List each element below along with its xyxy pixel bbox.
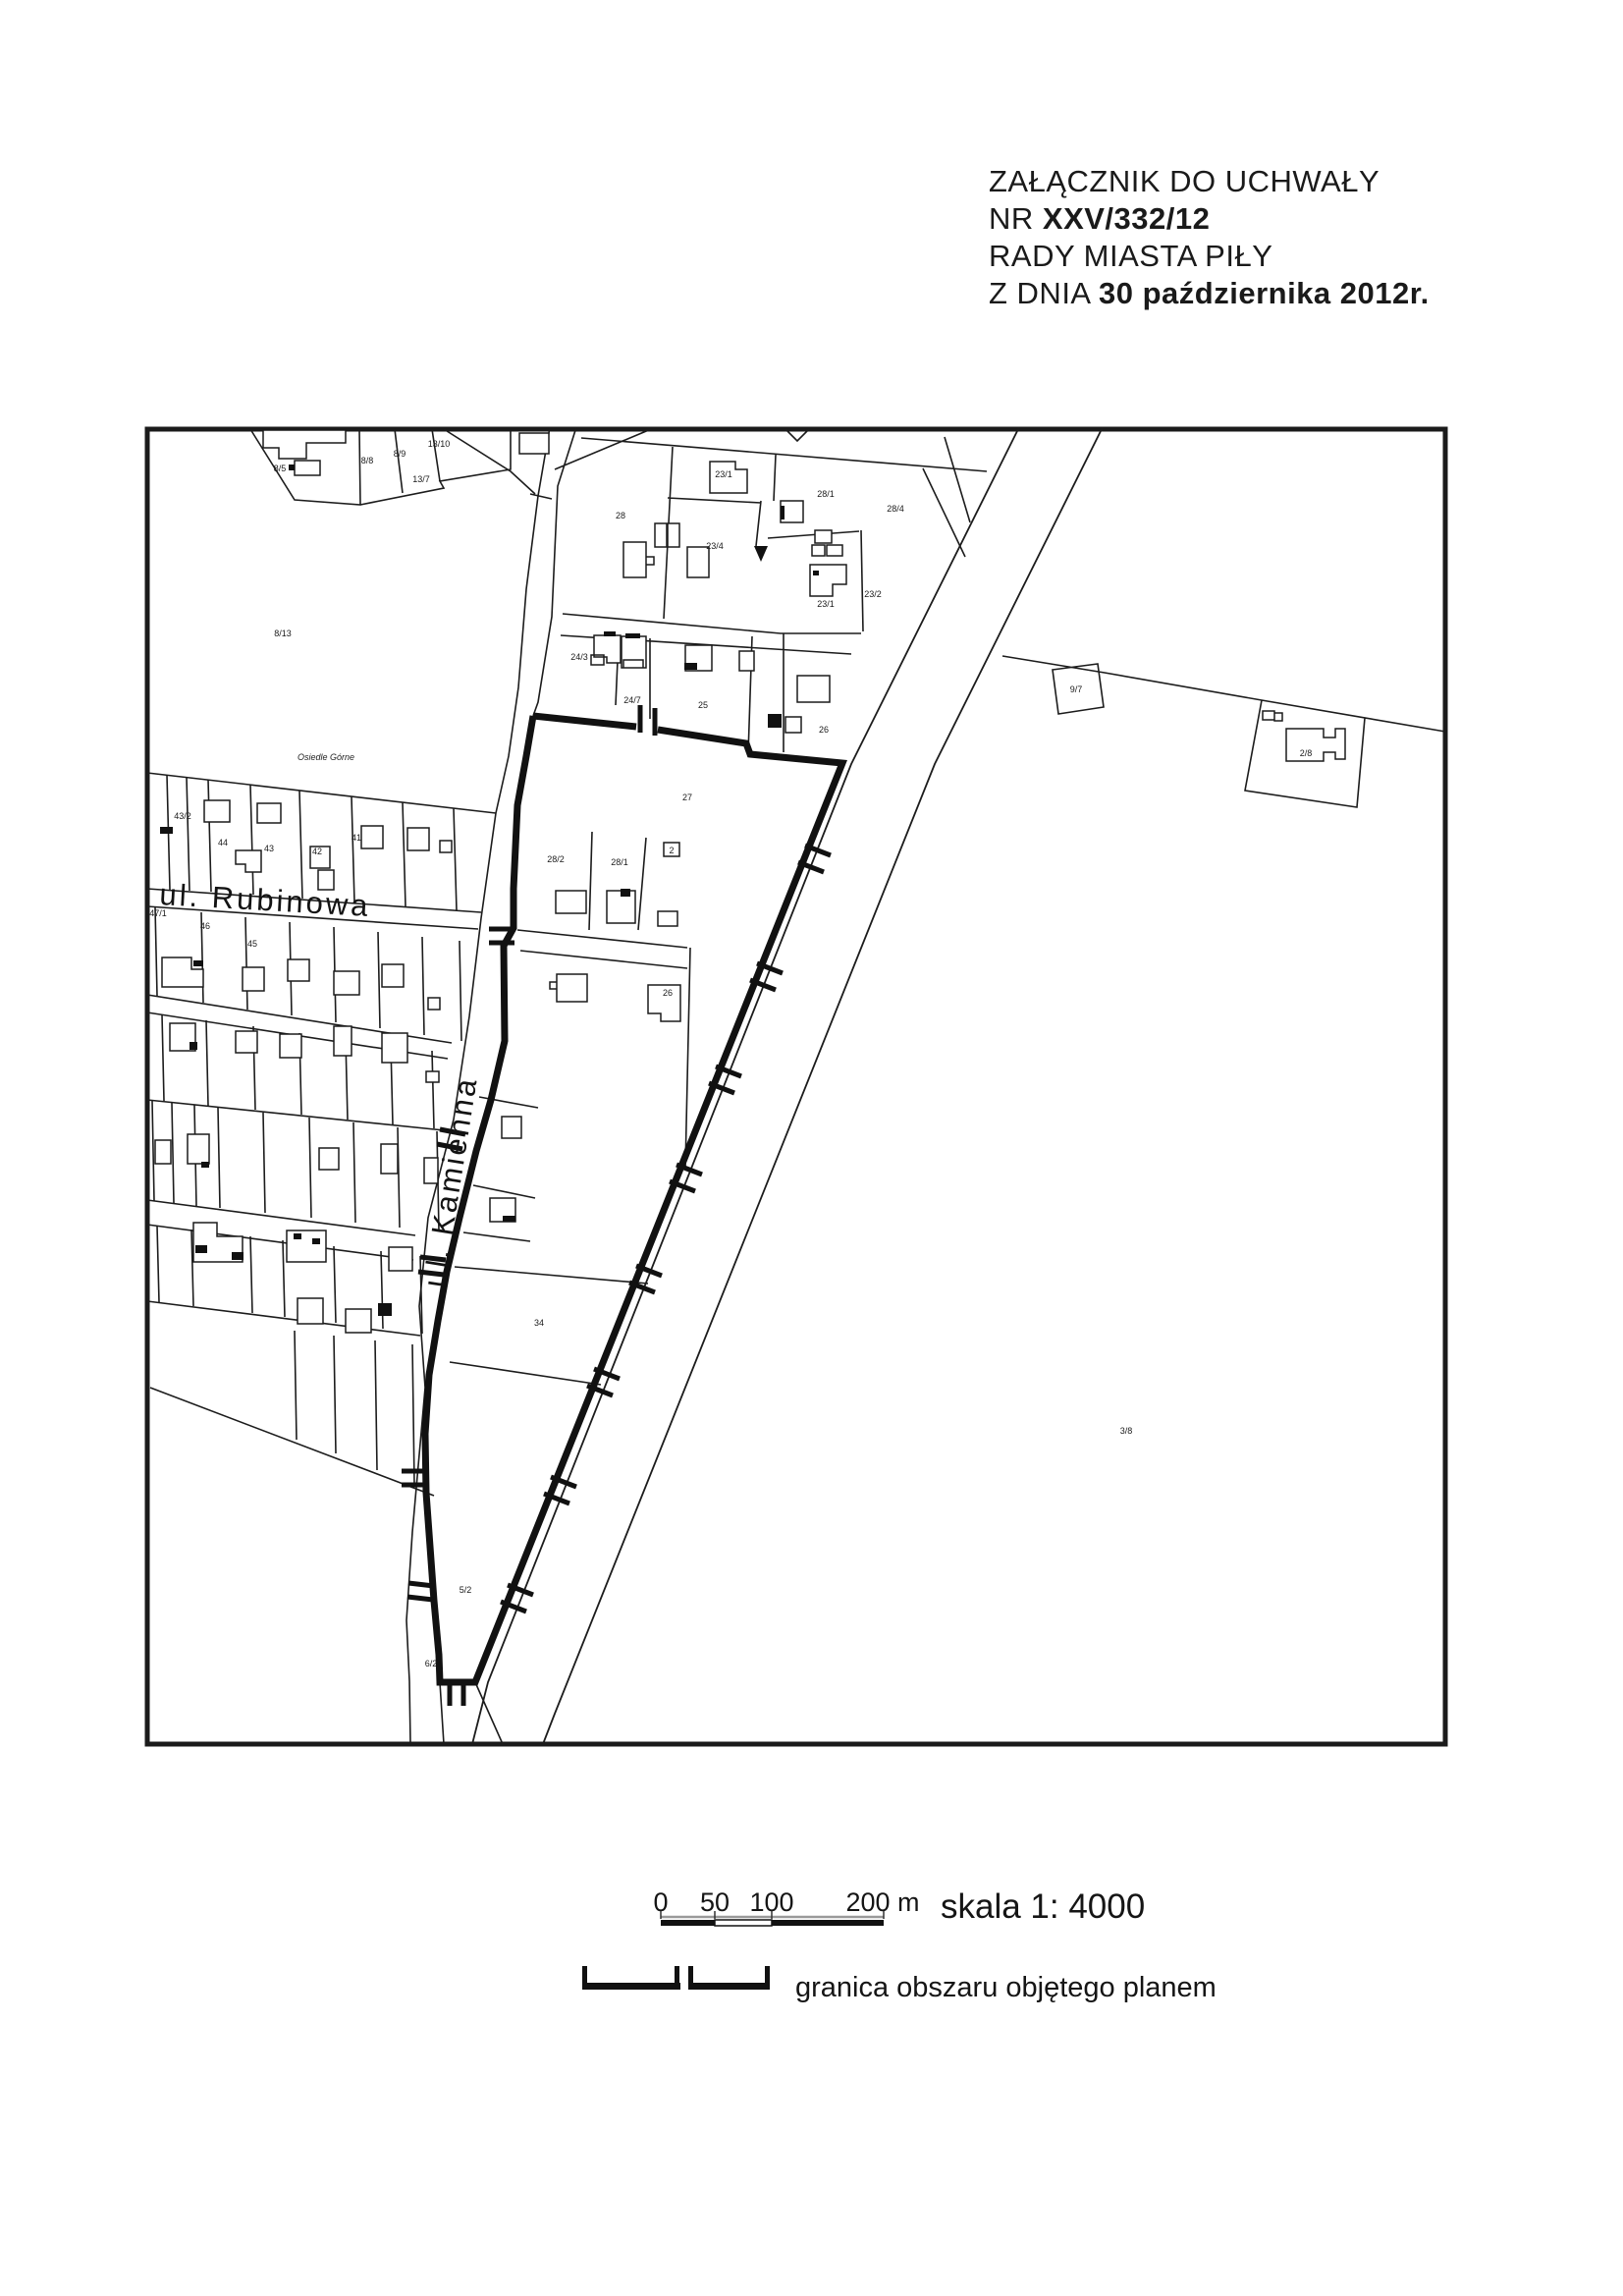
parcel-label: 26 <box>819 725 829 735</box>
parcel-label: 27 <box>682 793 692 802</box>
scale-text: skala 1: 4000 <box>941 1887 1145 1926</box>
parcel-label: 6/2 <box>425 1659 438 1668</box>
parcel-label: 8/5 <box>274 464 287 473</box>
boundary-legend-symbol <box>582 1966 770 1990</box>
parcel-label: 2/8 <box>1300 748 1313 758</box>
parcel-label: 9/7 <box>1070 684 1083 694</box>
parcel-label: 13/10 <box>428 439 451 449</box>
parcel-label: 26 <box>663 988 673 998</box>
plan-boundary <box>402 705 842 1706</box>
parcel-label: 2 <box>669 846 674 855</box>
parcel-label: 34 <box>534 1318 544 1328</box>
boundary-legend-label: granica obszaru objętego planem <box>795 1972 1217 2003</box>
parcel-label: 23/1 <box>715 469 732 479</box>
map-frame <box>147 429 1445 1744</box>
parcel-label: 13/7 <box>412 474 430 484</box>
parcel-label: 8/8 <box>361 456 374 465</box>
right-parcels <box>1002 656 1445 807</box>
parcel-label: 23/1 <box>817 599 835 609</box>
parcel-label: 45 <box>247 939 257 949</box>
parcel-label: 8/13 <box>274 629 292 638</box>
buildings <box>155 430 1345 1333</box>
parcel-label: 25 <box>698 700 708 710</box>
scale-seg-3 <box>772 1920 884 1926</box>
street-labels: ul. Rubinowa ul. Kamienna Osiedle Górne <box>159 752 484 1289</box>
parcel-label: 24/7 <box>623 695 641 705</box>
diagonal-road <box>472 427 1103 1744</box>
cadastral-lines <box>147 427 1445 1744</box>
document-page: ZAŁĄCZNIK DO UCHWAŁY NR XXV/332/12 RADY … <box>0 0 1623 2296</box>
parcel-labels: 8/58/88/913/713/108/1343/24443424147/146… <box>149 439 1312 1668</box>
parcel-label: 42 <box>312 847 322 856</box>
parcel-label: 44 <box>218 838 228 847</box>
parcel-label: 28 <box>616 511 625 520</box>
parcel-label: 43/2 <box>174 811 191 821</box>
parcel-label: 8/9 <box>394 449 406 459</box>
parcel-label: 46 <box>200 921 210 931</box>
scale-seg-1 <box>661 1920 715 1926</box>
scale-bar: 0 50 100 200 m skala 1: 4000 <box>653 1887 1145 1926</box>
parcel-label: 28/1 <box>611 857 628 867</box>
parcel-label: 47/1 <box>149 908 167 918</box>
parcel-label: 28/2 <box>547 854 565 864</box>
parcel-label: 24/3 <box>570 652 588 662</box>
parcel-label: 3/8 <box>1120 1426 1133 1436</box>
street-label-rubinowa: ul. Rubinowa <box>159 877 372 923</box>
parcel-label: 28/1 <box>817 489 835 499</box>
block-parcels <box>561 429 987 754</box>
legend: granica obszaru objętego planem <box>582 1966 1217 2003</box>
parcel-label: 43 <box>264 844 274 853</box>
scale-seg-2 <box>715 1920 772 1926</box>
scale-tick-200: 200 m <box>845 1887 919 1917</box>
parcel-label: 23/2 <box>864 589 882 599</box>
plan-map: ul. Rubinowa ul. Kamienna Osiedle Górne … <box>0 0 1623 2296</box>
area-label: Osiedle Górne <box>298 752 354 762</box>
parcel-label: 28/4 <box>887 504 904 514</box>
parcel-label: 23/4 <box>706 541 724 551</box>
parcel-label: 5/2 <box>460 1585 472 1595</box>
parcel-label: 41 <box>352 833 361 843</box>
